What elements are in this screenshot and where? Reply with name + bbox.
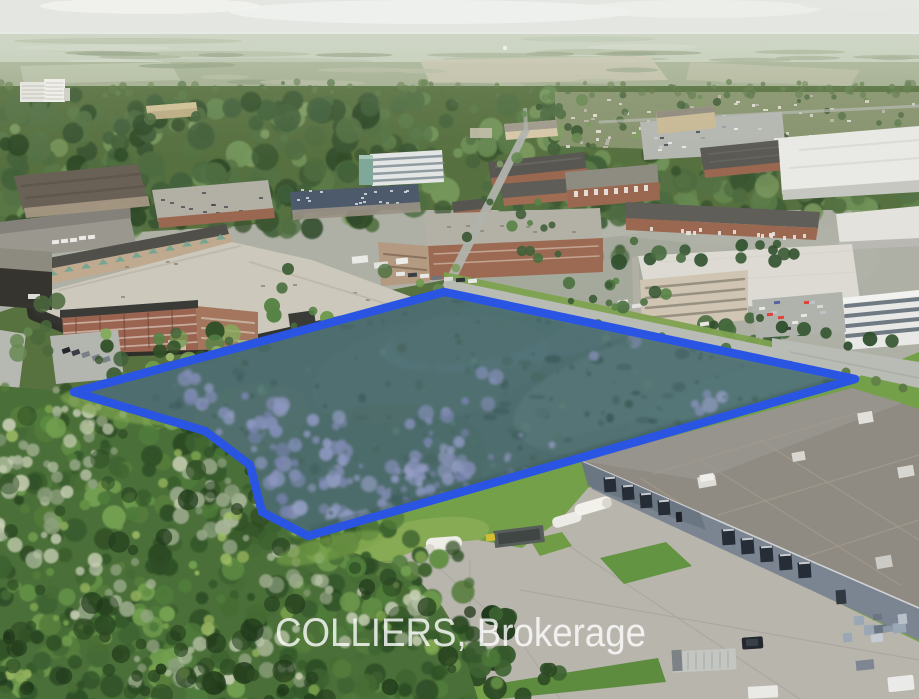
svg-text:COLLIERS, Brokerage: COLLIERS, Brokerage [275, 611, 646, 655]
